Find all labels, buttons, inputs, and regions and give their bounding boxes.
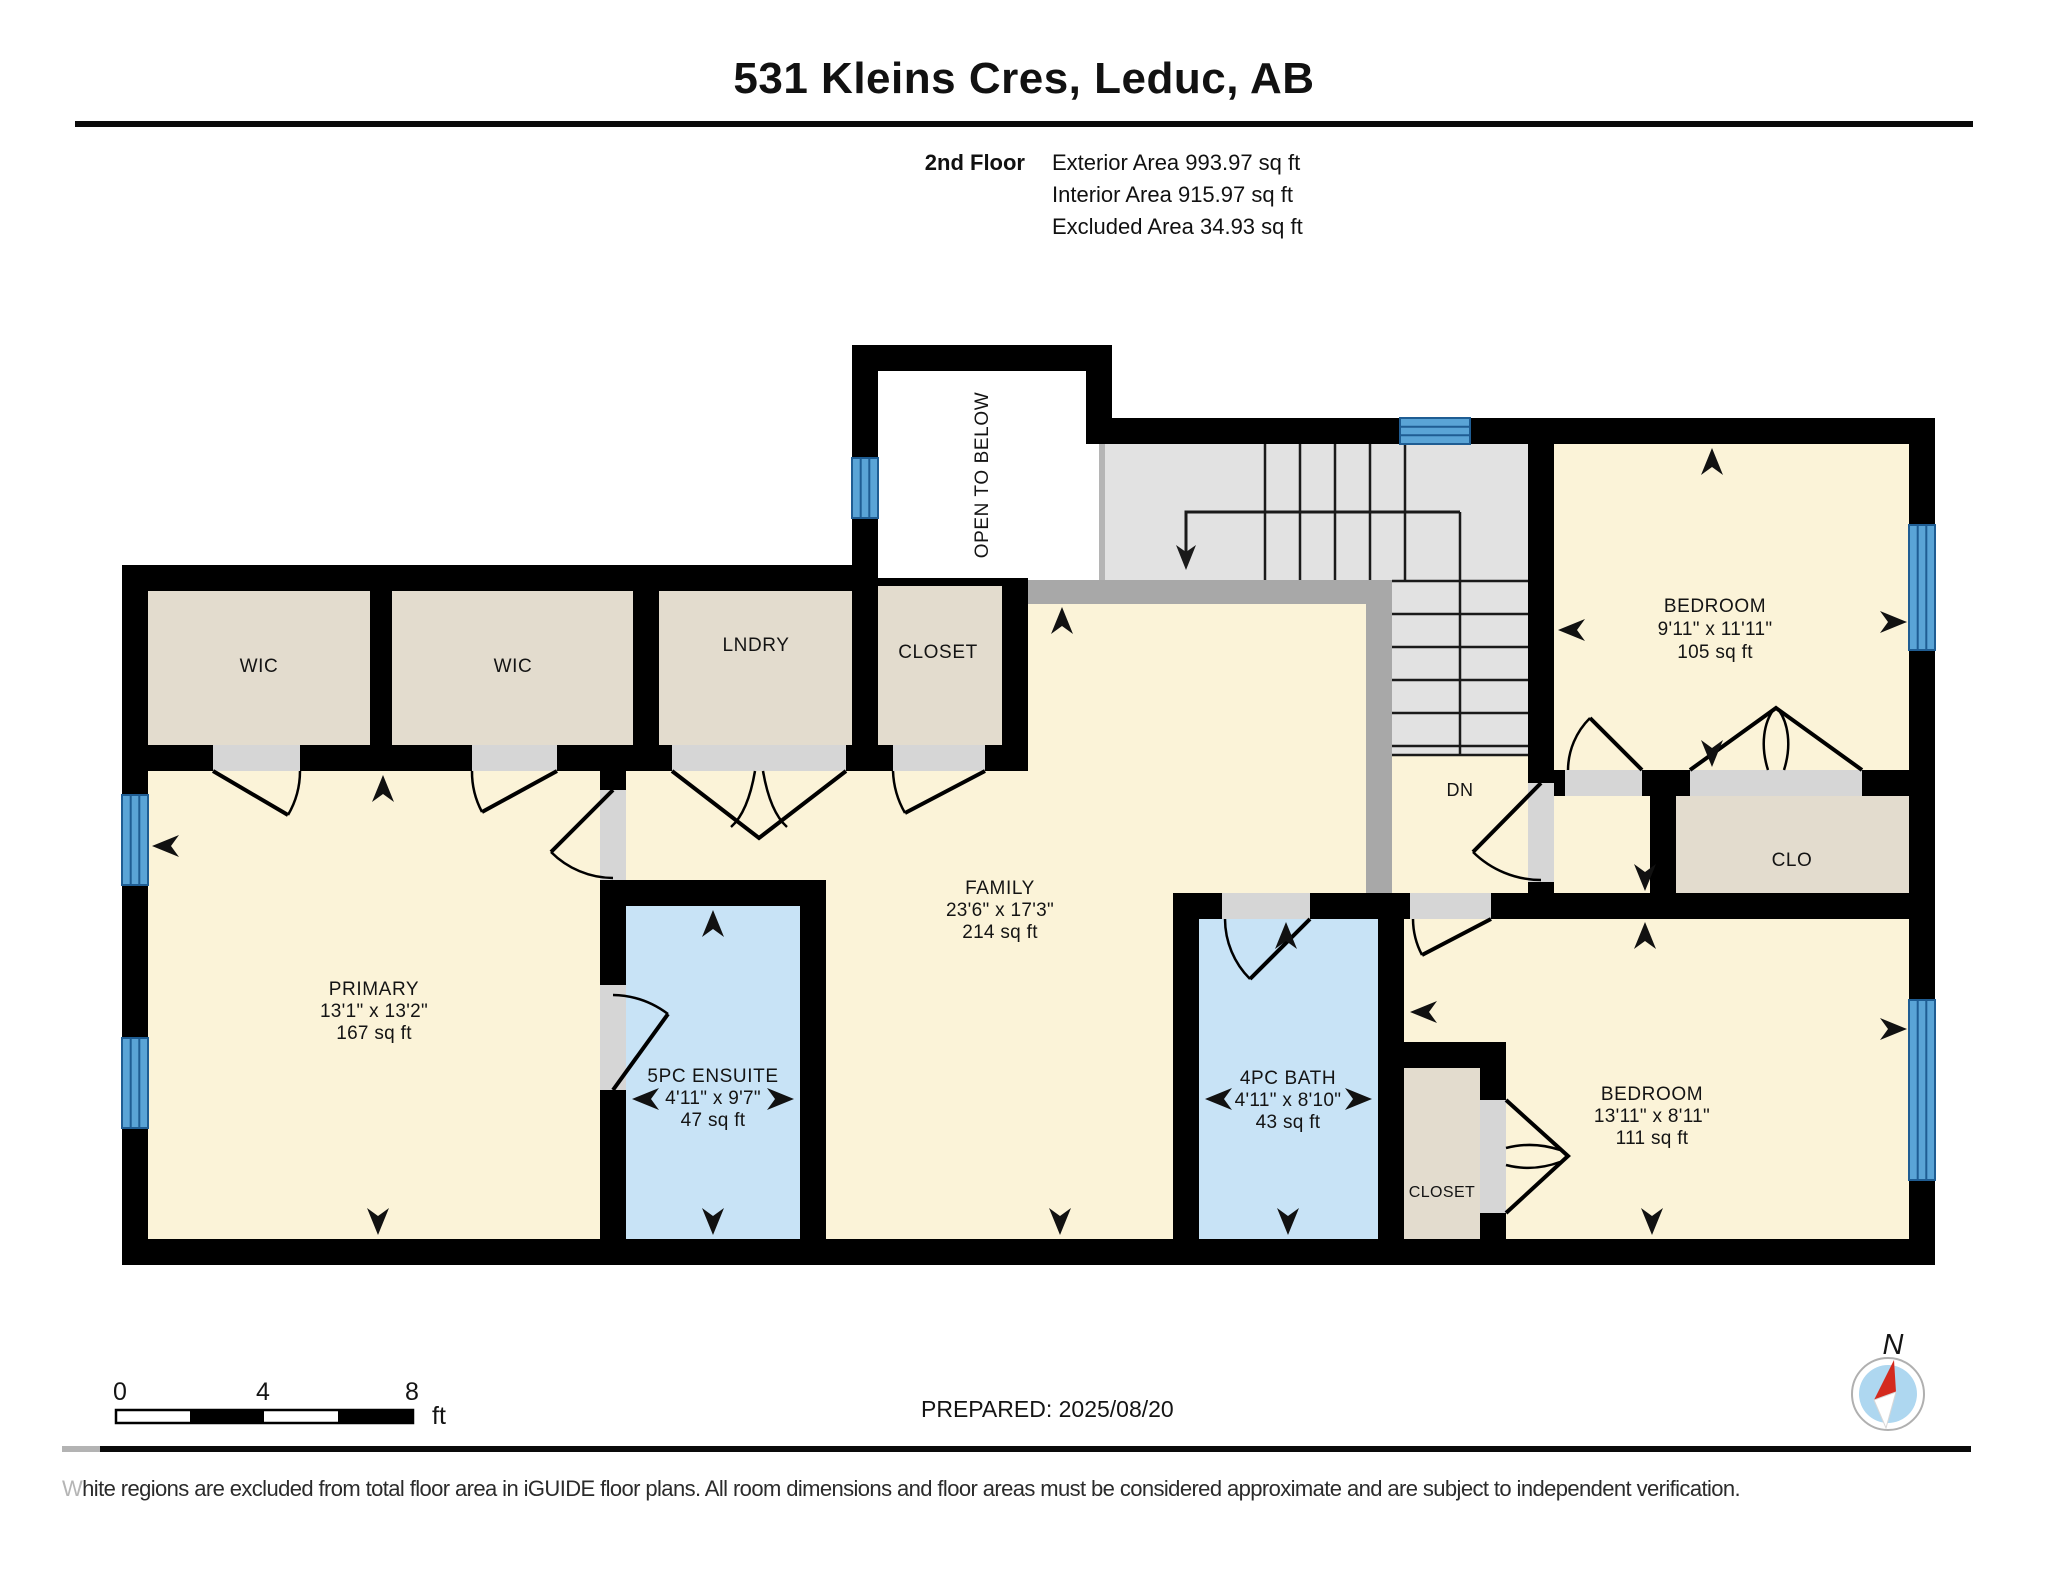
window <box>1400 418 1470 444</box>
primary-dims: 13'1" x 13'2" <box>320 1001 428 1022</box>
family-area: 214 sq ft <box>962 922 1038 943</box>
scale-tick-4: 4 <box>256 1378 270 1406</box>
disclaimer-text: White regions are excluded from total fl… <box>62 1476 1740 1502</box>
bedroom-bottom-label: BEDROOM <box>1601 1084 1703 1105</box>
floor-plan-drawing: WIC WIC LNDRY CLOSET OPEN TO BELOW BEDRO… <box>0 0 2048 1583</box>
window <box>1909 525 1935 650</box>
floor-plan-page: 531 Kleins Cres, Leduc, AB 2nd Floor Ext… <box>0 0 2048 1583</box>
prepared-date: PREPARED: 2025/08/20 <box>921 1396 1174 1422</box>
bedroom-bottom-dims: 13'11" x 8'11" <box>1594 1106 1710 1127</box>
compass-icon: N <box>1852 1329 1924 1430</box>
clo-label: CLO <box>1772 850 1813 871</box>
window <box>1909 1000 1935 1180</box>
stairs-railing-vertical <box>1366 604 1392 893</box>
closet-bottom-label: CLOSET <box>1409 1184 1475 1201</box>
closet-hall-label: CLOSET <box>898 642 978 663</box>
window <box>852 458 878 518</box>
scale-unit: ft <box>432 1402 446 1430</box>
open-below-divider <box>1099 444 1105 580</box>
bath-label: 4PC BATH <box>1240 1068 1336 1089</box>
wic-right-label: WIC <box>494 656 533 677</box>
scale-tick-0: 0 <box>113 1378 127 1406</box>
window <box>122 795 148 885</box>
ensuite-area: 47 sq ft <box>681 1110 746 1131</box>
bath-area: 43 sq ft <box>1256 1112 1321 1133</box>
primary-area: 167 sq ft <box>336 1023 412 1044</box>
compass-north-label: N <box>1883 1329 1904 1361</box>
hall-strip-floor <box>1554 796 1650 893</box>
stairs-dn-label: DN <box>1447 780 1474 800</box>
family-label: FAMILY <box>965 878 1035 899</box>
clo-floor <box>1676 796 1909 893</box>
window <box>122 1038 148 1128</box>
laundry-label: LNDRY <box>722 635 789 656</box>
closet-bottom-floor <box>1404 1068 1480 1239</box>
bedroom-top-area: 105 sq ft <box>1677 642 1753 663</box>
ensuite-dims: 4'11" x 9'7" <box>665 1088 761 1109</box>
dn-landing-floor <box>1392 755 1528 893</box>
laundry-floor <box>659 591 852 745</box>
footer-divider <box>100 1446 1971 1452</box>
open-to-below-label: OPEN TO BELOW <box>972 392 993 559</box>
family-dims: 23'6" x 17'3" <box>946 900 1054 921</box>
bath-dims: 4'11" x 8'10" <box>1235 1090 1342 1111</box>
primary-label: PRIMARY <box>329 979 419 1000</box>
bedroom-top-dims: 9'11" x 11'11" <box>1658 619 1773 640</box>
bedroom-bottom-area: 111 sq ft <box>1616 1128 1689 1149</box>
stairs-railing-horizontal <box>1028 580 1392 604</box>
scale-tick-8: 8 <box>405 1378 419 1406</box>
closet-hall-floor <box>878 586 1002 745</box>
disclaimer-body: hite regions are excluded from total flo… <box>82 1476 1740 1501</box>
scale-bar: 0 4 8 ft <box>113 1378 446 1430</box>
ensuite-label: 5PC ENSUITE <box>647 1066 778 1087</box>
bedroom-top-label: BEDROOM <box>1664 596 1766 617</box>
footer-divider-gray <box>62 1446 100 1452</box>
disclaimer-lead: W <box>62 1476 82 1501</box>
wic-left-label: WIC <box>240 656 279 677</box>
scale-bar-segment <box>190 1410 264 1423</box>
scale-bar-segment <box>338 1410 413 1423</box>
